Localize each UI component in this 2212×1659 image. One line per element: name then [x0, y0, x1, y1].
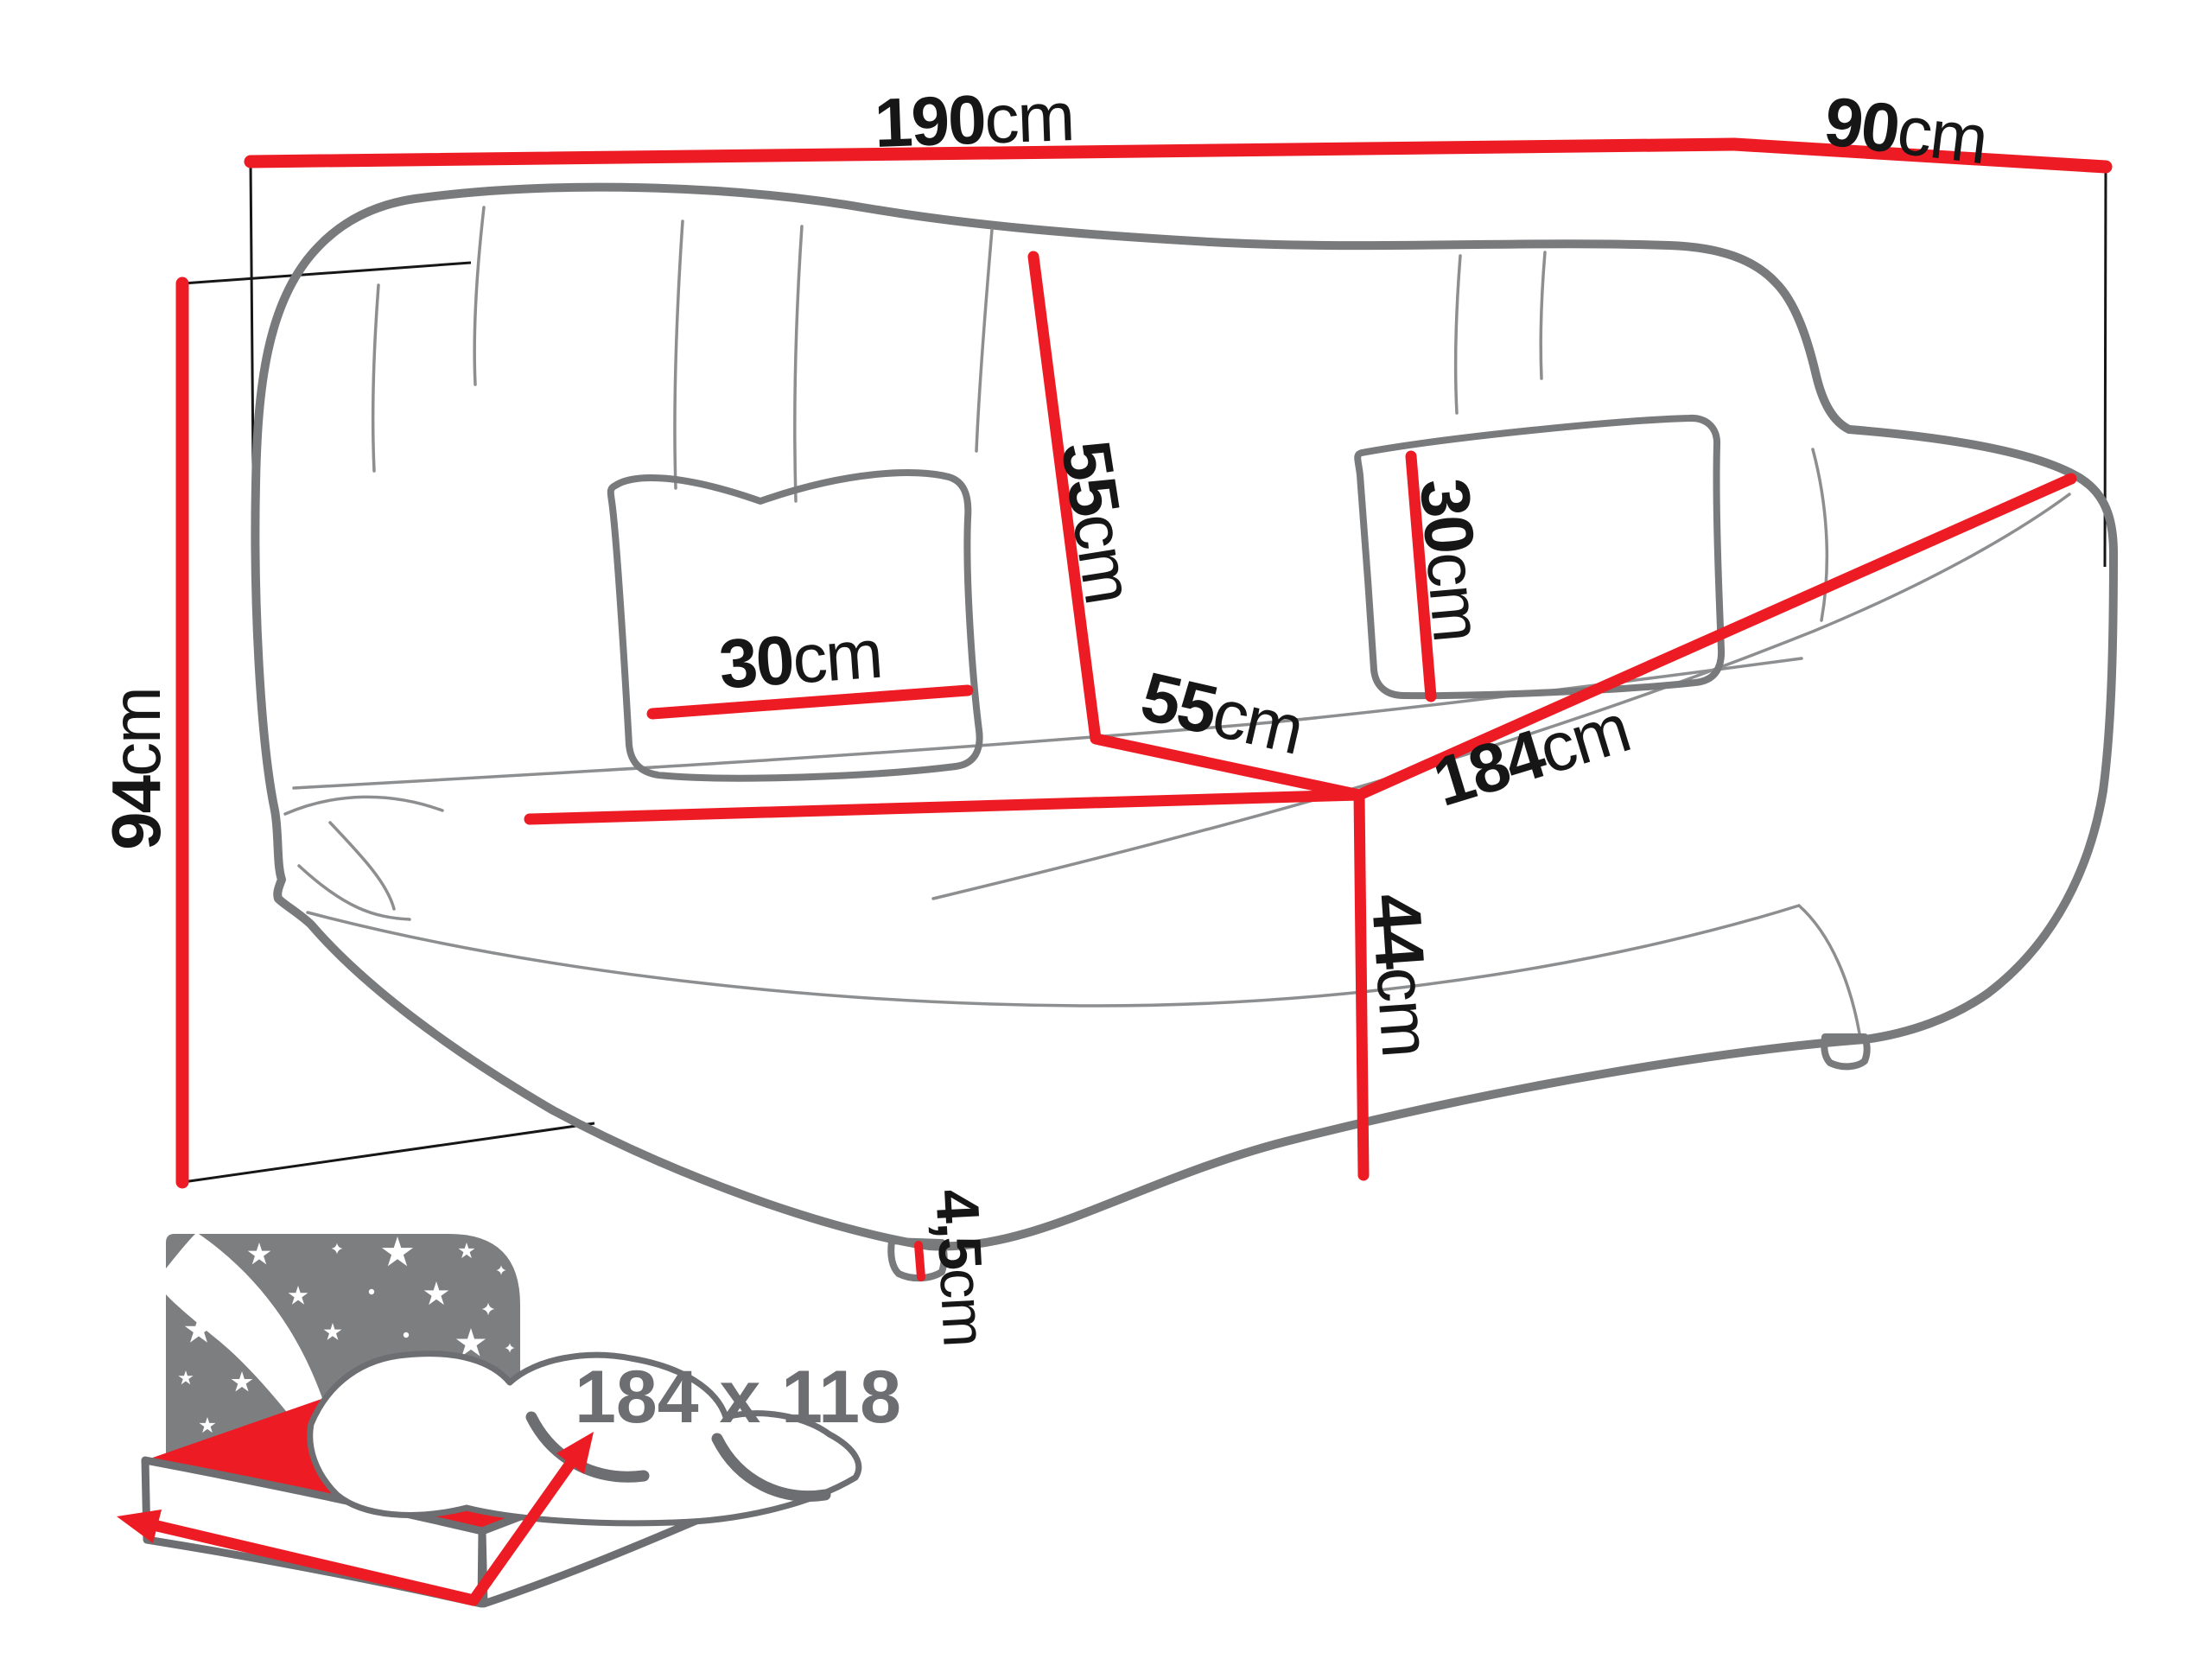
collar-fold-1 — [285, 797, 442, 814]
star-icon — [404, 1332, 409, 1338]
backrest-crease-3 — [675, 221, 683, 488]
dim-line-seat-height-44 — [1359, 795, 1363, 1175]
label-width-190: 190cm — [873, 78, 1074, 162]
label-height-94: 94cm — [98, 688, 175, 850]
box-edge-bottom-left-diagonal — [183, 1123, 594, 1182]
label-backrest-55: 55cm — [1047, 435, 1148, 607]
label-pillow-left-30: 30cm — [716, 615, 883, 703]
backrest-crease-2 — [474, 207, 484, 385]
box-edge-left-vertical — [251, 162, 253, 468]
star-icon — [369, 1289, 374, 1294]
collar-fold-2 — [299, 866, 410, 919]
backrest-crease-1 — [373, 285, 378, 471]
backrest-crease-4 — [795, 226, 802, 501]
label-pillow-right-30: 30cm — [1406, 475, 1497, 644]
sofa-dimension-diagram: 190cm 90cm 94cm 55cm 55cm 184cm 44cm 30c… — [0, 0, 2212, 1659]
backrest-crease-5 — [976, 230, 992, 451]
label-depth-90: 90cm — [1821, 82, 1991, 178]
label-leg-45: 4,5cm — [923, 1188, 998, 1347]
label-seat-height-44: 44cm — [1357, 891, 1445, 1058]
dim-line-leg-45 — [918, 1245, 921, 1277]
backrest-crease-6 — [1456, 256, 1460, 413]
label-seat-width-184: 184cm — [1425, 690, 1637, 821]
perspective-box — [183, 162, 2106, 1182]
box-edge-top-left-diagonal — [183, 263, 471, 283]
backrest-crease-7 — [1541, 252, 1545, 378]
sleeping-area-size: 184 x 118 — [575, 1356, 901, 1439]
seat-front-fold — [308, 906, 1859, 1033]
